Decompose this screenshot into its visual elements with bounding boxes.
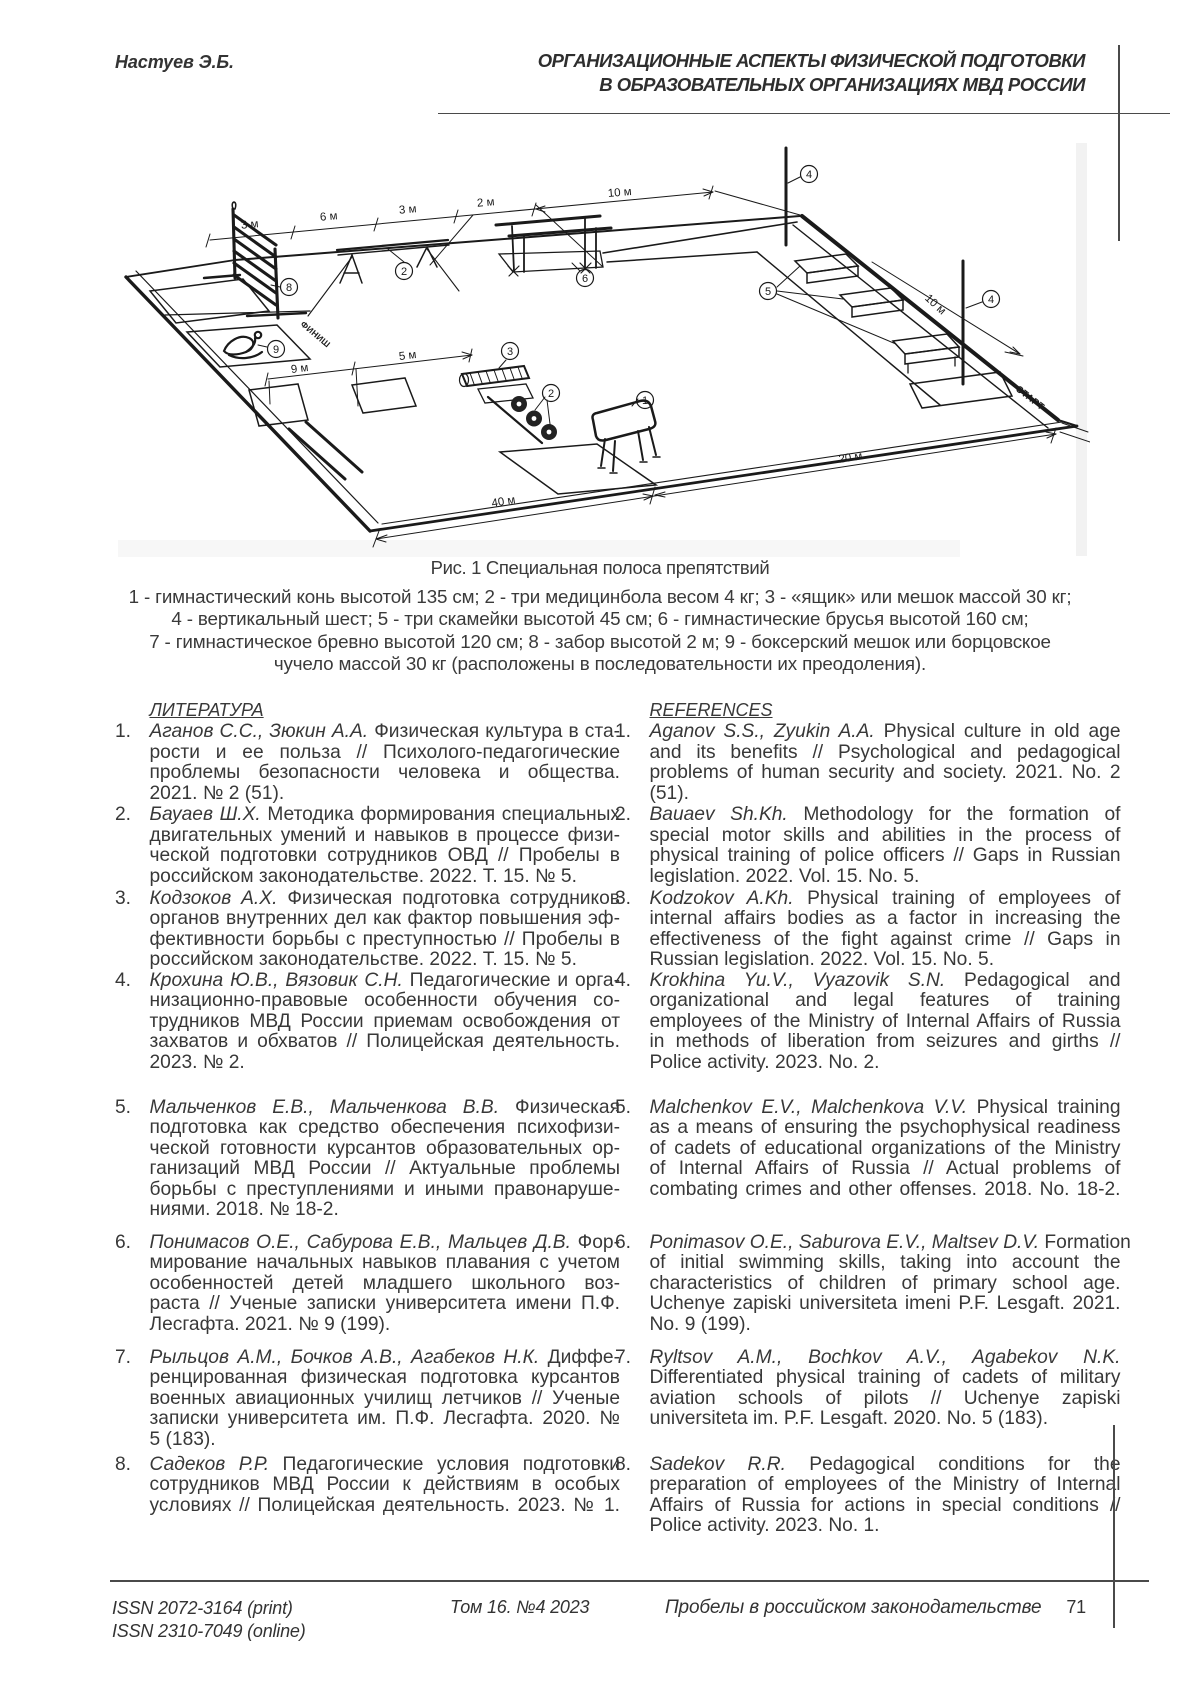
svg-text:3 м: 3 м xyxy=(398,203,417,216)
svg-text:ФИНИШ: ФИНИШ xyxy=(299,319,333,350)
svg-text:4: 4 xyxy=(806,169,812,181)
svg-text:40 м: 40 м xyxy=(491,494,517,510)
svg-text:6: 6 xyxy=(582,273,588,285)
svg-text:6 м: 6 м xyxy=(319,210,338,223)
svg-text:10 м: 10 м xyxy=(607,186,632,200)
svg-text:1: 1 xyxy=(642,395,648,407)
svg-text:5: 5 xyxy=(765,286,771,298)
svg-text:2: 2 xyxy=(548,388,554,400)
svg-text:СТАРТ: СТАРТ xyxy=(1013,384,1046,413)
svg-text:3: 3 xyxy=(507,346,513,358)
svg-text:5 м: 5 м xyxy=(398,349,417,363)
svg-text:2 м: 2 м xyxy=(476,196,495,209)
svg-text:9: 9 xyxy=(273,344,279,356)
svg-text:2: 2 xyxy=(401,266,407,278)
svg-text:3 м: 3 м xyxy=(240,218,259,231)
svg-text:4: 4 xyxy=(988,294,994,306)
svg-text:9 м: 9 м xyxy=(290,362,309,376)
svg-text:20 м: 20 м xyxy=(838,450,864,466)
svg-text:8: 8 xyxy=(286,282,292,294)
